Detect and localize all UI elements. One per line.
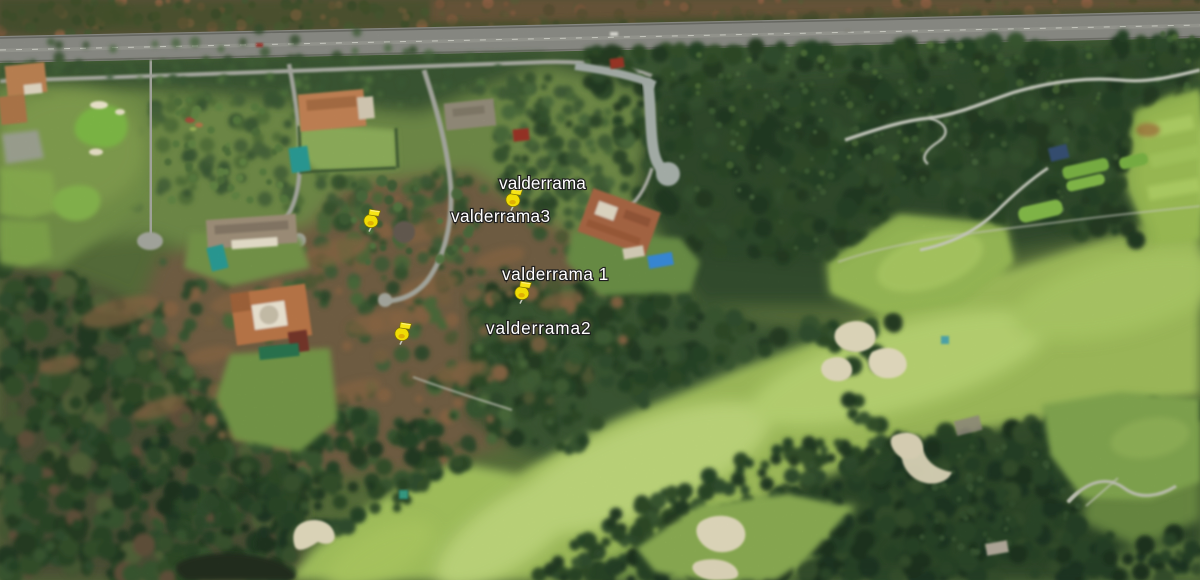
svg-text:valderrama3: valderrama3 [451,206,550,226]
svg-text:valderrama: valderrama [499,173,586,193]
svg-text:valderrama2: valderrama2 [486,318,591,338]
svg-text:valderrama 1: valderrama 1 [502,264,609,284]
